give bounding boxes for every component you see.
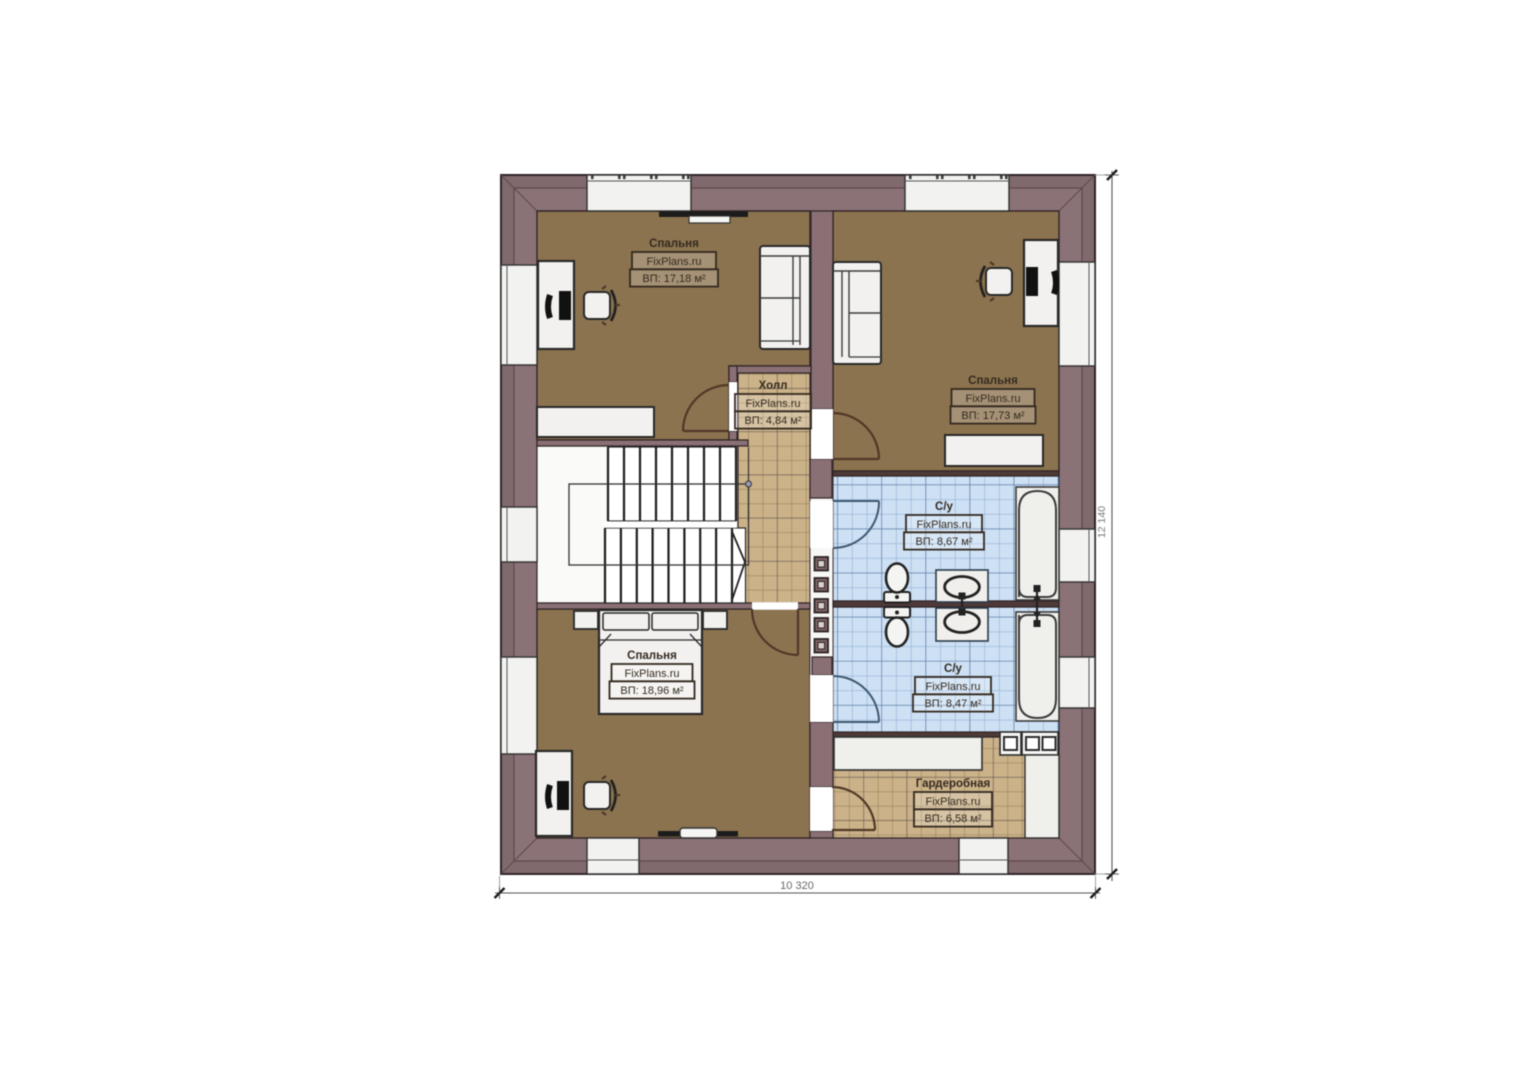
- svg-text:ВП: 17,73 м²: ВП: 17,73 м²: [961, 410, 1025, 422]
- svg-text:ВП: 18,96 м²: ВП: 18,96 м²: [620, 685, 684, 697]
- svg-text:FixPlans.ru: FixPlans.ru: [965, 393, 1020, 405]
- svg-text:ВП: 6,58 м²: ВП: 6,58 м²: [924, 813, 981, 825]
- svg-text:Гардеробная: Гардеробная: [916, 778, 990, 790]
- svg-text:ВП: 8,47 м²: ВП: 8,47 м²: [924, 698, 981, 710]
- svg-text:ВП: 8,67 м²: ВП: 8,67 м²: [915, 536, 972, 548]
- svg-text:12 140: 12 140: [1096, 506, 1108, 538]
- svg-text:С/у: С/у: [935, 501, 954, 513]
- svg-text:FixPlans.ru: FixPlans.ru: [916, 519, 971, 531]
- svg-text:ВП: 17,18 м²: ВП: 17,18 м²: [642, 273, 706, 285]
- svg-text:FixPlans.ru: FixPlans.ru: [925, 796, 980, 808]
- svg-text:FixPlans.ru: FixPlans.ru: [745, 398, 800, 410]
- svg-text:10 320: 10 320: [780, 880, 814, 892]
- svg-text:Спальня: Спальня: [627, 650, 677, 662]
- svg-text:Холл: Холл: [759, 380, 788, 392]
- svg-text:FixPlans.ru: FixPlans.ru: [646, 256, 701, 268]
- svg-text:FixPlans.ru: FixPlans.ru: [624, 668, 679, 680]
- svg-text:С/у: С/у: [944, 663, 963, 675]
- svg-text:FixPlans.ru: FixPlans.ru: [925, 681, 980, 693]
- svg-text:Спальня: Спальня: [968, 375, 1018, 387]
- svg-text:ВП: 4,84 м²: ВП: 4,84 м²: [744, 415, 801, 427]
- svg-text:Спальня: Спальня: [649, 238, 699, 250]
